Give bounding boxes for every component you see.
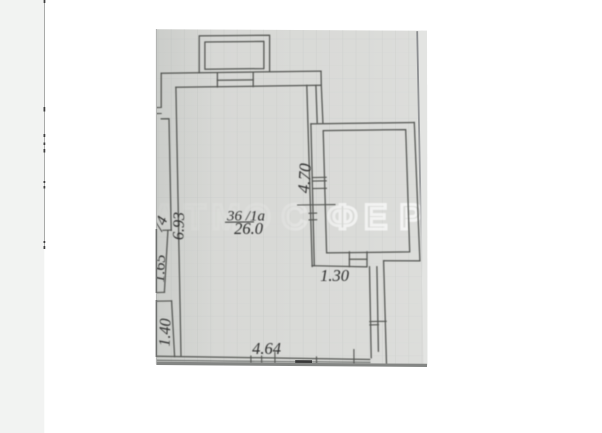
svg-text:1.40: 1.40: [157, 318, 175, 347]
svg-text:4.70: 4.70: [294, 162, 315, 194]
svg-text:4.64: 4.64: [252, 339, 281, 358]
svg-text:6.93: 6.93: [170, 212, 188, 241]
svg-text:26.0: 26.0: [234, 219, 264, 238]
svg-text:АТМОСФЕРА: АТМОСФЕРА: [152, 198, 449, 237]
svg-text:1.30: 1.30: [320, 266, 350, 285]
